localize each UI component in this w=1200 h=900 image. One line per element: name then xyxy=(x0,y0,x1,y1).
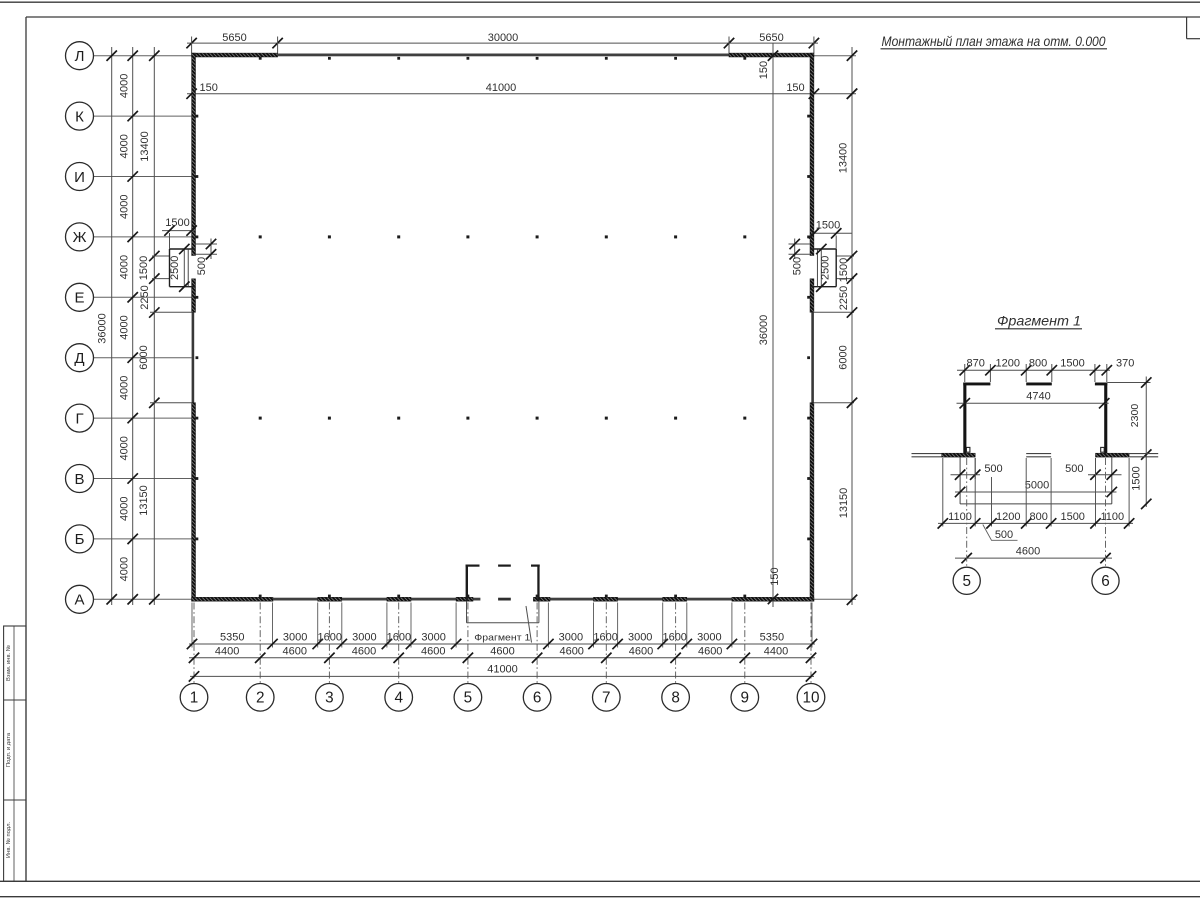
svg-text:30000: 30000 xyxy=(488,32,519,44)
svg-text:800: 800 xyxy=(1029,358,1047,370)
svg-text:6000: 6000 xyxy=(138,345,150,369)
svg-text:4000: 4000 xyxy=(118,194,130,218)
svg-text:1600: 1600 xyxy=(662,631,686,643)
svg-text:5350: 5350 xyxy=(220,631,244,643)
svg-text:500: 500 xyxy=(792,257,804,275)
svg-text:4400: 4400 xyxy=(215,645,239,657)
svg-text:150: 150 xyxy=(200,82,218,94)
svg-text:500: 500 xyxy=(1065,463,1083,475)
svg-text:4600: 4600 xyxy=(698,645,722,657)
svg-text:41000: 41000 xyxy=(487,664,518,676)
svg-text:1500: 1500 xyxy=(138,256,150,280)
svg-text:А: А xyxy=(74,592,84,609)
svg-text:1600: 1600 xyxy=(593,631,617,643)
svg-text:Взам. инв. №: Взам. инв. № xyxy=(6,645,12,681)
svg-text:4600: 4600 xyxy=(559,645,583,657)
svg-text:6000: 6000 xyxy=(838,345,850,369)
svg-text:2300: 2300 xyxy=(1129,404,1141,428)
svg-text:500: 500 xyxy=(984,463,1002,475)
svg-text:150: 150 xyxy=(786,82,804,94)
svg-text:6: 6 xyxy=(1101,573,1110,590)
svg-text:Л: Л xyxy=(75,48,85,65)
svg-text:1600: 1600 xyxy=(318,631,342,643)
svg-text:Подп. и дата: Подп. и дата xyxy=(6,732,12,767)
svg-text:3000: 3000 xyxy=(421,631,445,643)
svg-text:500: 500 xyxy=(995,529,1013,541)
svg-text:1500: 1500 xyxy=(838,258,850,282)
svg-text:4000: 4000 xyxy=(118,376,130,400)
svg-text:Ж: Ж xyxy=(73,229,87,246)
svg-text:4: 4 xyxy=(394,690,403,707)
svg-text:4000: 4000 xyxy=(118,557,130,581)
svg-text:1200: 1200 xyxy=(996,358,1020,370)
svg-text:2500: 2500 xyxy=(169,256,181,280)
svg-text:13400: 13400 xyxy=(139,131,151,162)
svg-text:В: В xyxy=(74,471,84,488)
svg-text:6: 6 xyxy=(533,690,542,707)
svg-text:13150: 13150 xyxy=(838,488,850,519)
svg-text:И: И xyxy=(74,169,85,186)
svg-text:36000: 36000 xyxy=(758,315,770,346)
svg-text:870: 870 xyxy=(967,358,985,370)
svg-text:1500: 1500 xyxy=(1060,511,1084,523)
svg-text:1500: 1500 xyxy=(165,217,189,229)
svg-text:4600: 4600 xyxy=(490,645,514,657)
svg-text:Фрагмент 1: Фрагмент 1 xyxy=(474,632,530,642)
svg-text:5350: 5350 xyxy=(760,631,784,643)
svg-text:5: 5 xyxy=(464,690,473,707)
svg-text:4600: 4600 xyxy=(421,645,445,657)
svg-text:4000: 4000 xyxy=(118,436,130,460)
svg-text:10: 10 xyxy=(802,690,819,707)
svg-text:4000: 4000 xyxy=(118,255,130,279)
svg-text:500: 500 xyxy=(196,257,208,275)
svg-text:8: 8 xyxy=(671,690,680,707)
svg-text:Е: Е xyxy=(74,290,84,307)
svg-text:1600: 1600 xyxy=(387,631,411,643)
svg-text:4000: 4000 xyxy=(118,315,130,339)
svg-text:5650: 5650 xyxy=(759,32,783,44)
svg-text:7: 7 xyxy=(602,690,611,707)
svg-text:3000: 3000 xyxy=(697,631,721,643)
svg-text:1100: 1100 xyxy=(1100,511,1124,523)
svg-text:4400: 4400 xyxy=(764,645,788,657)
svg-text:41000: 41000 xyxy=(486,82,517,94)
svg-text:2500: 2500 xyxy=(820,256,832,280)
svg-text:Д: Д xyxy=(74,350,84,367)
svg-text:1100: 1100 xyxy=(948,511,972,523)
svg-text:4000: 4000 xyxy=(118,74,130,98)
svg-text:5000: 5000 xyxy=(1025,479,1049,491)
svg-text:3: 3 xyxy=(325,690,334,707)
svg-text:13150: 13150 xyxy=(138,485,150,516)
svg-text:5: 5 xyxy=(962,573,971,590)
svg-text:4000: 4000 xyxy=(118,496,130,520)
svg-text:Г: Г xyxy=(75,410,83,427)
svg-text:13400: 13400 xyxy=(838,143,850,174)
svg-text:4600: 4600 xyxy=(283,645,307,657)
svg-text:Б: Б xyxy=(75,531,85,548)
svg-text:3000: 3000 xyxy=(559,631,583,643)
svg-text:2: 2 xyxy=(256,690,265,707)
svg-text:Фрагмент 1: Фрагмент 1 xyxy=(997,313,1081,329)
svg-text:1500: 1500 xyxy=(816,220,840,232)
svg-text:9: 9 xyxy=(741,690,750,707)
svg-text:4000: 4000 xyxy=(118,134,130,158)
svg-text:3000: 3000 xyxy=(283,631,307,643)
svg-text:3000: 3000 xyxy=(352,631,376,643)
svg-text:370: 370 xyxy=(1116,358,1134,370)
svg-text:150: 150 xyxy=(769,567,781,585)
svg-text:4740: 4740 xyxy=(1026,391,1050,403)
svg-text:4600: 4600 xyxy=(1016,545,1040,557)
svg-text:4600: 4600 xyxy=(629,645,653,657)
svg-text:Монтажный план этажа на отм. 0: Монтажный план этажа на отм. 0.000 xyxy=(882,34,1106,49)
svg-text:1200: 1200 xyxy=(996,511,1020,523)
svg-text:5650: 5650 xyxy=(222,32,246,44)
svg-text:1500: 1500 xyxy=(1131,466,1143,490)
svg-text:800: 800 xyxy=(1030,511,1048,523)
svg-text:2250: 2250 xyxy=(838,286,850,310)
svg-text:1: 1 xyxy=(190,690,199,707)
svg-text:Инв. № подл.: Инв. № подл. xyxy=(6,822,12,858)
svg-text:36000: 36000 xyxy=(97,313,109,344)
svg-text:1500: 1500 xyxy=(1060,358,1084,370)
svg-text:4600: 4600 xyxy=(352,645,376,657)
svg-text:К: К xyxy=(75,108,84,125)
svg-text:2250: 2250 xyxy=(139,285,151,309)
svg-text:150: 150 xyxy=(758,61,770,79)
svg-text:3000: 3000 xyxy=(628,631,652,643)
